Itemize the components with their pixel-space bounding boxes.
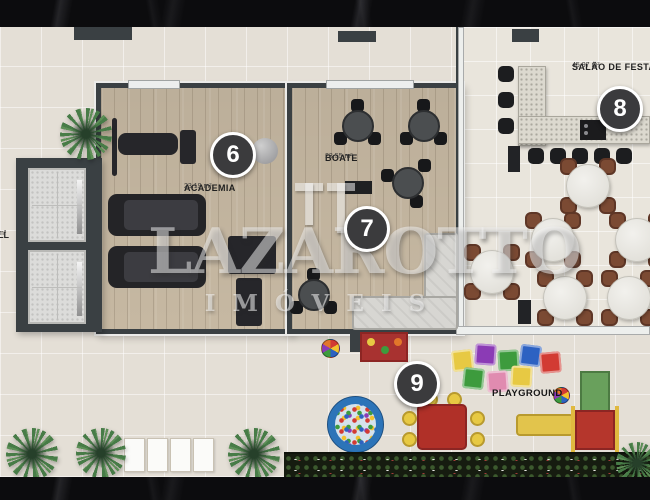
slide-rail <box>571 406 575 452</box>
label-playground: PLAYGROUND <box>492 388 563 399</box>
gym-machine <box>180 130 196 164</box>
bar-stool <box>498 118 514 134</box>
treadmill-belt <box>124 200 198 230</box>
table-top <box>543 276 587 320</box>
dining-table <box>609 212 650 268</box>
elevator-door <box>77 180 82 234</box>
bar-stool <box>498 92 514 108</box>
dining-table <box>464 244 520 300</box>
wall-stub <box>350 330 360 352</box>
bar-stool <box>616 148 632 164</box>
table-top <box>342 110 374 142</box>
dining-table <box>537 270 593 326</box>
slide-base <box>575 410 615 450</box>
bar-stool <box>528 148 544 164</box>
dining-table <box>601 270 650 326</box>
party-table <box>334 102 382 150</box>
window-segment <box>128 80 180 89</box>
bar-stool <box>498 66 514 82</box>
trash-bin <box>508 146 520 172</box>
kids-table <box>417 404 467 450</box>
spin-bike <box>236 278 262 326</box>
slide-rail <box>615 406 619 452</box>
marker-academia: 6 <box>210 132 256 178</box>
kids-chair <box>470 432 485 447</box>
speaker <box>518 300 531 324</box>
foam-mat <box>474 343 496 365</box>
wall-stub <box>338 31 376 42</box>
kids-chair <box>402 411 417 426</box>
marker-playground: 9 <box>394 361 440 407</box>
lounger <box>193 438 214 472</box>
party-table <box>400 102 448 150</box>
table-top <box>470 250 514 294</box>
barbell <box>112 118 117 176</box>
palm-plant <box>76 428 126 478</box>
chair <box>418 159 431 172</box>
elevator-block <box>16 158 102 332</box>
wall-stub <box>512 29 539 42</box>
floor-plan: LAZAROTTO IMÓVEIS 6 7 8 9 ACADEMIA 23.19… <box>0 0 650 500</box>
exterior-band-top <box>0 0 650 27</box>
ball-pit <box>328 397 383 452</box>
lounger <box>147 438 168 472</box>
dining-table <box>560 158 616 214</box>
table-top <box>298 279 330 311</box>
lounger <box>124 438 145 472</box>
exercise-ball <box>252 138 278 164</box>
elevator-cabin <box>28 168 86 242</box>
palm-plant <box>6 428 58 480</box>
weight-bench <box>118 133 178 155</box>
marker-salao: 8 <box>597 86 643 132</box>
table-top <box>607 276 650 320</box>
toy-ball <box>321 339 340 358</box>
treadmill <box>108 194 206 236</box>
palm-plant <box>60 108 112 160</box>
table-top <box>408 110 440 142</box>
elevator-door <box>77 262 82 316</box>
treadmill-belt <box>124 252 198 282</box>
marker-boate: 7 <box>344 206 390 252</box>
salao-bottom-wall <box>456 326 650 335</box>
garden-hedge <box>284 452 650 480</box>
play-bench <box>516 414 574 436</box>
table-top <box>566 164 610 208</box>
kids-chair <box>470 411 485 426</box>
table-top <box>531 218 575 262</box>
slide-tower <box>580 371 610 413</box>
foam-mat <box>462 367 485 390</box>
foam-mat <box>539 351 562 374</box>
dining-table <box>525 212 581 268</box>
exterior-band-bottom <box>0 477 650 500</box>
lounger <box>170 438 191 472</box>
sofa-section <box>352 296 458 330</box>
palm-plant <box>228 428 280 480</box>
foam-mat <box>510 365 532 387</box>
table-top <box>392 167 424 199</box>
elevator-cabin <box>28 250 86 324</box>
party-table <box>290 271 338 319</box>
treadmill <box>108 246 206 288</box>
wall-stub <box>74 27 132 40</box>
kids-chair <box>402 432 417 447</box>
multi-gym-machine <box>228 236 276 274</box>
sideboard <box>345 181 372 194</box>
window-segment <box>326 80 414 89</box>
party-table <box>384 159 432 207</box>
activity-mat <box>360 332 408 362</box>
